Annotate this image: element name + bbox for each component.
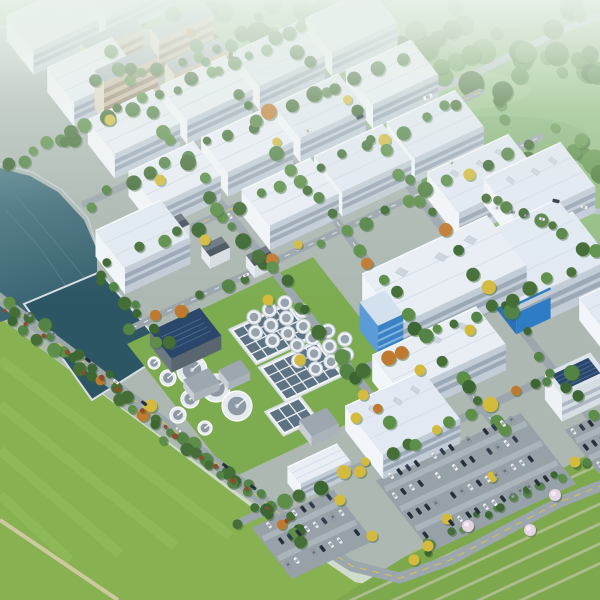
tree	[285, 164, 297, 176]
tree	[102, 258, 111, 267]
tree	[282, 26, 296, 40]
tree	[159, 436, 168, 445]
tree	[395, 346, 408, 359]
tree	[428, 208, 436, 216]
tree	[178, 58, 187, 67]
tree	[234, 26, 249, 41]
tree	[115, 387, 121, 393]
tree	[131, 300, 139, 308]
tree	[511, 386, 521, 396]
tree	[272, 137, 281, 146]
tree	[354, 466, 366, 478]
tree	[104, 45, 117, 58]
tree	[124, 63, 136, 75]
tree	[391, 286, 403, 298]
tree	[31, 334, 43, 346]
tree	[118, 297, 131, 310]
tree	[102, 185, 112, 195]
tree	[149, 324, 159, 334]
tree	[493, 196, 502, 205]
tree	[493, 95, 505, 107]
tree	[125, 102, 139, 116]
tree	[381, 351, 396, 366]
tree	[545, 369, 554, 378]
tree	[313, 192, 324, 203]
tree	[462, 380, 475, 393]
tree	[235, 233, 251, 249]
tree	[137, 68, 145, 76]
tree	[576, 242, 590, 256]
autumn-tree	[200, 235, 211, 246]
tree	[506, 294, 519, 307]
tree	[317, 239, 325, 247]
tree	[184, 72, 198, 86]
tree	[582, 46, 598, 62]
tree	[441, 174, 453, 186]
tree	[303, 186, 313, 196]
tree	[23, 322, 27, 326]
tree	[524, 139, 534, 149]
tree	[284, 518, 289, 523]
tree	[150, 62, 164, 76]
tree	[550, 123, 559, 132]
tree	[65, 350, 70, 355]
tree	[449, 320, 458, 329]
autumn-tree	[465, 325, 476, 336]
tree	[419, 329, 433, 343]
tree	[311, 325, 326, 340]
blossom-highlight	[464, 522, 469, 527]
tree	[463, 168, 475, 180]
autumn-tree	[570, 457, 581, 468]
tree	[174, 86, 182, 94]
tree	[485, 511, 493, 519]
circle	[341, 335, 350, 344]
tree	[294, 536, 307, 549]
tree	[159, 157, 171, 169]
tree	[112, 62, 125, 75]
tree	[216, 471, 224, 479]
autumn-tree	[367, 531, 378, 542]
tree	[522, 281, 537, 296]
tree	[199, 456, 203, 460]
tree	[252, 250, 266, 264]
circle	[327, 357, 336, 366]
tree	[473, 396, 482, 405]
tree	[195, 290, 204, 299]
tree	[147, 106, 160, 119]
tree	[486, 300, 498, 312]
tree	[380, 206, 389, 215]
circle	[267, 321, 276, 330]
tree	[265, 506, 269, 510]
tree	[203, 137, 211, 145]
tree	[7, 316, 17, 326]
tree	[437, 356, 448, 367]
tree	[483, 397, 498, 412]
tree	[402, 308, 415, 321]
tree	[250, 503, 259, 512]
tree	[439, 100, 449, 110]
tree	[482, 280, 496, 294]
circle	[251, 328, 260, 337]
tree	[244, 487, 248, 491]
tree	[337, 149, 346, 158]
tree	[515, 42, 536, 63]
autumn-tree	[335, 495, 346, 506]
tree	[137, 92, 148, 103]
tree	[304, 56, 316, 68]
tree	[409, 439, 421, 451]
tree	[306, 86, 322, 102]
autumn-tree	[155, 175, 166, 186]
tree	[461, 45, 480, 64]
tree	[165, 135, 176, 146]
tree	[337, 465, 351, 479]
tree	[210, 203, 223, 216]
tree	[573, 10, 585, 22]
tree	[268, 31, 282, 45]
tree	[524, 327, 532, 335]
tree	[383, 416, 396, 429]
tree	[86, 371, 97, 382]
tree	[244, 101, 253, 110]
tree	[261, 44, 272, 55]
autumn-tree	[351, 413, 362, 424]
tree	[180, 155, 196, 171]
tree	[511, 67, 528, 84]
tree	[123, 323, 135, 335]
tree	[228, 56, 241, 69]
tree	[335, 349, 350, 364]
tree	[38, 318, 52, 332]
tree	[163, 336, 176, 349]
tree	[227, 222, 235, 230]
tree	[483, 160, 494, 171]
autumn-tree	[105, 115, 116, 126]
autumn-tree	[423, 541, 434, 552]
tree	[439, 223, 453, 237]
tree	[233, 89, 244, 100]
tree	[443, 416, 455, 428]
tree	[213, 464, 218, 469]
autumn-tree	[295, 355, 306, 366]
tree	[200, 173, 211, 184]
tree	[125, 75, 136, 86]
tree	[113, 393, 126, 406]
tree	[548, 221, 556, 229]
tree	[447, 527, 455, 535]
tree	[329, 83, 340, 94]
tree	[151, 337, 162, 348]
tree	[214, 66, 223, 75]
tree	[267, 261, 279, 273]
tree	[269, 146, 284, 161]
tree	[359, 217, 373, 231]
circle	[310, 349, 319, 358]
tree	[342, 225, 353, 236]
tree	[453, 245, 464, 256]
tree	[355, 363, 370, 378]
tree	[403, 195, 415, 207]
tree	[81, 371, 85, 375]
tree	[128, 405, 137, 414]
tree	[232, 519, 242, 529]
tree	[87, 202, 97, 212]
tree	[175, 305, 188, 318]
autumn-tree	[263, 295, 274, 306]
tree	[3, 158, 15, 170]
tree	[294, 175, 307, 188]
tree	[387, 447, 400, 460]
tree	[397, 53, 410, 66]
tree	[186, 27, 195, 36]
tree	[193, 52, 203, 62]
tree	[545, 42, 568, 65]
tree	[3, 309, 7, 313]
tree	[566, 267, 576, 277]
rendering-canvas: Bird's-eye rendering of an industrial pa…	[0, 0, 600, 600]
tree	[230, 478, 236, 484]
tree	[405, 175, 415, 185]
tree	[277, 494, 292, 509]
tree	[204, 460, 214, 470]
tree	[222, 279, 235, 292]
tree	[132, 309, 141, 318]
tree	[557, 67, 567, 77]
circle	[250, 313, 259, 322]
tree	[212, 44, 221, 53]
tree	[164, 425, 168, 429]
tree	[361, 258, 373, 270]
tree	[190, 39, 203, 52]
tree	[556, 228, 567, 239]
tree	[64, 125, 77, 138]
tree	[466, 268, 479, 281]
tree	[261, 104, 277, 120]
circle	[299, 322, 308, 331]
tree	[295, 21, 306, 32]
tree	[373, 404, 383, 414]
circle	[280, 298, 289, 307]
tree	[155, 90, 164, 99]
tree	[501, 147, 514, 160]
tree	[491, 27, 503, 39]
tree	[300, 305, 309, 314]
tree	[257, 188, 266, 197]
tree	[542, 377, 551, 386]
tree	[550, 471, 557, 478]
tree	[245, 51, 253, 59]
tree	[541, 272, 552, 283]
tree	[96, 276, 105, 285]
tree	[397, 126, 411, 140]
tree	[150, 420, 160, 430]
tree	[582, 458, 591, 467]
tree	[150, 310, 161, 321]
tree	[250, 115, 263, 128]
tree	[471, 312, 482, 323]
circle	[311, 365, 320, 374]
autumn-tree	[415, 365, 426, 376]
tree	[134, 242, 144, 252]
circle	[282, 314, 291, 323]
tree	[379, 275, 389, 285]
tree	[531, 379, 541, 389]
tree	[172, 226, 182, 236]
tree	[564, 365, 580, 381]
tree	[481, 193, 490, 202]
tree	[588, 410, 599, 421]
blossom-highlight	[551, 491, 556, 496]
tree	[343, 95, 352, 104]
tree	[450, 100, 461, 111]
tree	[317, 163, 325, 171]
tree	[314, 481, 328, 495]
tree	[543, 19, 562, 38]
blossom-highlight	[526, 526, 531, 531]
tree	[225, 39, 237, 51]
circle	[293, 341, 302, 350]
tree	[282, 275, 294, 287]
tree	[233, 202, 247, 216]
tree	[29, 146, 38, 155]
tree	[418, 182, 433, 197]
tree	[19, 156, 31, 168]
tree	[443, 20, 462, 39]
tree	[577, 135, 588, 146]
tree	[126, 175, 141, 190]
tree	[534, 352, 544, 362]
tree	[293, 489, 305, 501]
tree	[222, 130, 233, 141]
tree	[560, 382, 571, 393]
tree	[465, 409, 476, 420]
tree	[172, 433, 178, 439]
tree	[286, 99, 299, 112]
tree	[328, 209, 338, 219]
tree	[572, 390, 583, 401]
tree	[392, 169, 404, 181]
tree	[40, 136, 53, 149]
tree	[499, 114, 509, 124]
tree	[99, 375, 105, 381]
tree	[371, 61, 386, 76]
tree	[144, 166, 157, 179]
tree	[353, 244, 365, 256]
tree	[413, 196, 425, 208]
tree	[41, 333, 46, 338]
circle	[268, 336, 277, 345]
tree	[47, 343, 61, 357]
tree	[77, 118, 91, 132]
tree	[254, 12, 263, 21]
tree	[109, 282, 119, 292]
tree	[89, 74, 101, 86]
tree	[274, 181, 286, 193]
tree	[433, 324, 442, 333]
tree	[140, 408, 145, 413]
tree	[158, 235, 171, 248]
tree	[294, 240, 303, 249]
tree	[203, 191, 216, 204]
tree	[257, 489, 266, 498]
tree	[290, 45, 305, 60]
tree	[347, 72, 361, 86]
circle	[325, 342, 334, 351]
tree	[558, 474, 567, 483]
tree	[405, 20, 425, 40]
tree	[358, 390, 369, 401]
aerial-site-rendering: Bird's-eye rendering of an industrial pa…	[0, 0, 600, 600]
tree	[432, 425, 442, 435]
tree	[3, 297, 15, 309]
tree	[366, 135, 375, 144]
tree	[165, 6, 180, 21]
circle	[284, 329, 293, 338]
tree	[106, 370, 114, 378]
autumn-tree	[409, 555, 420, 566]
tree	[113, 103, 122, 112]
tree	[422, 112, 431, 121]
tree	[361, 457, 370, 466]
tree	[381, 144, 393, 156]
